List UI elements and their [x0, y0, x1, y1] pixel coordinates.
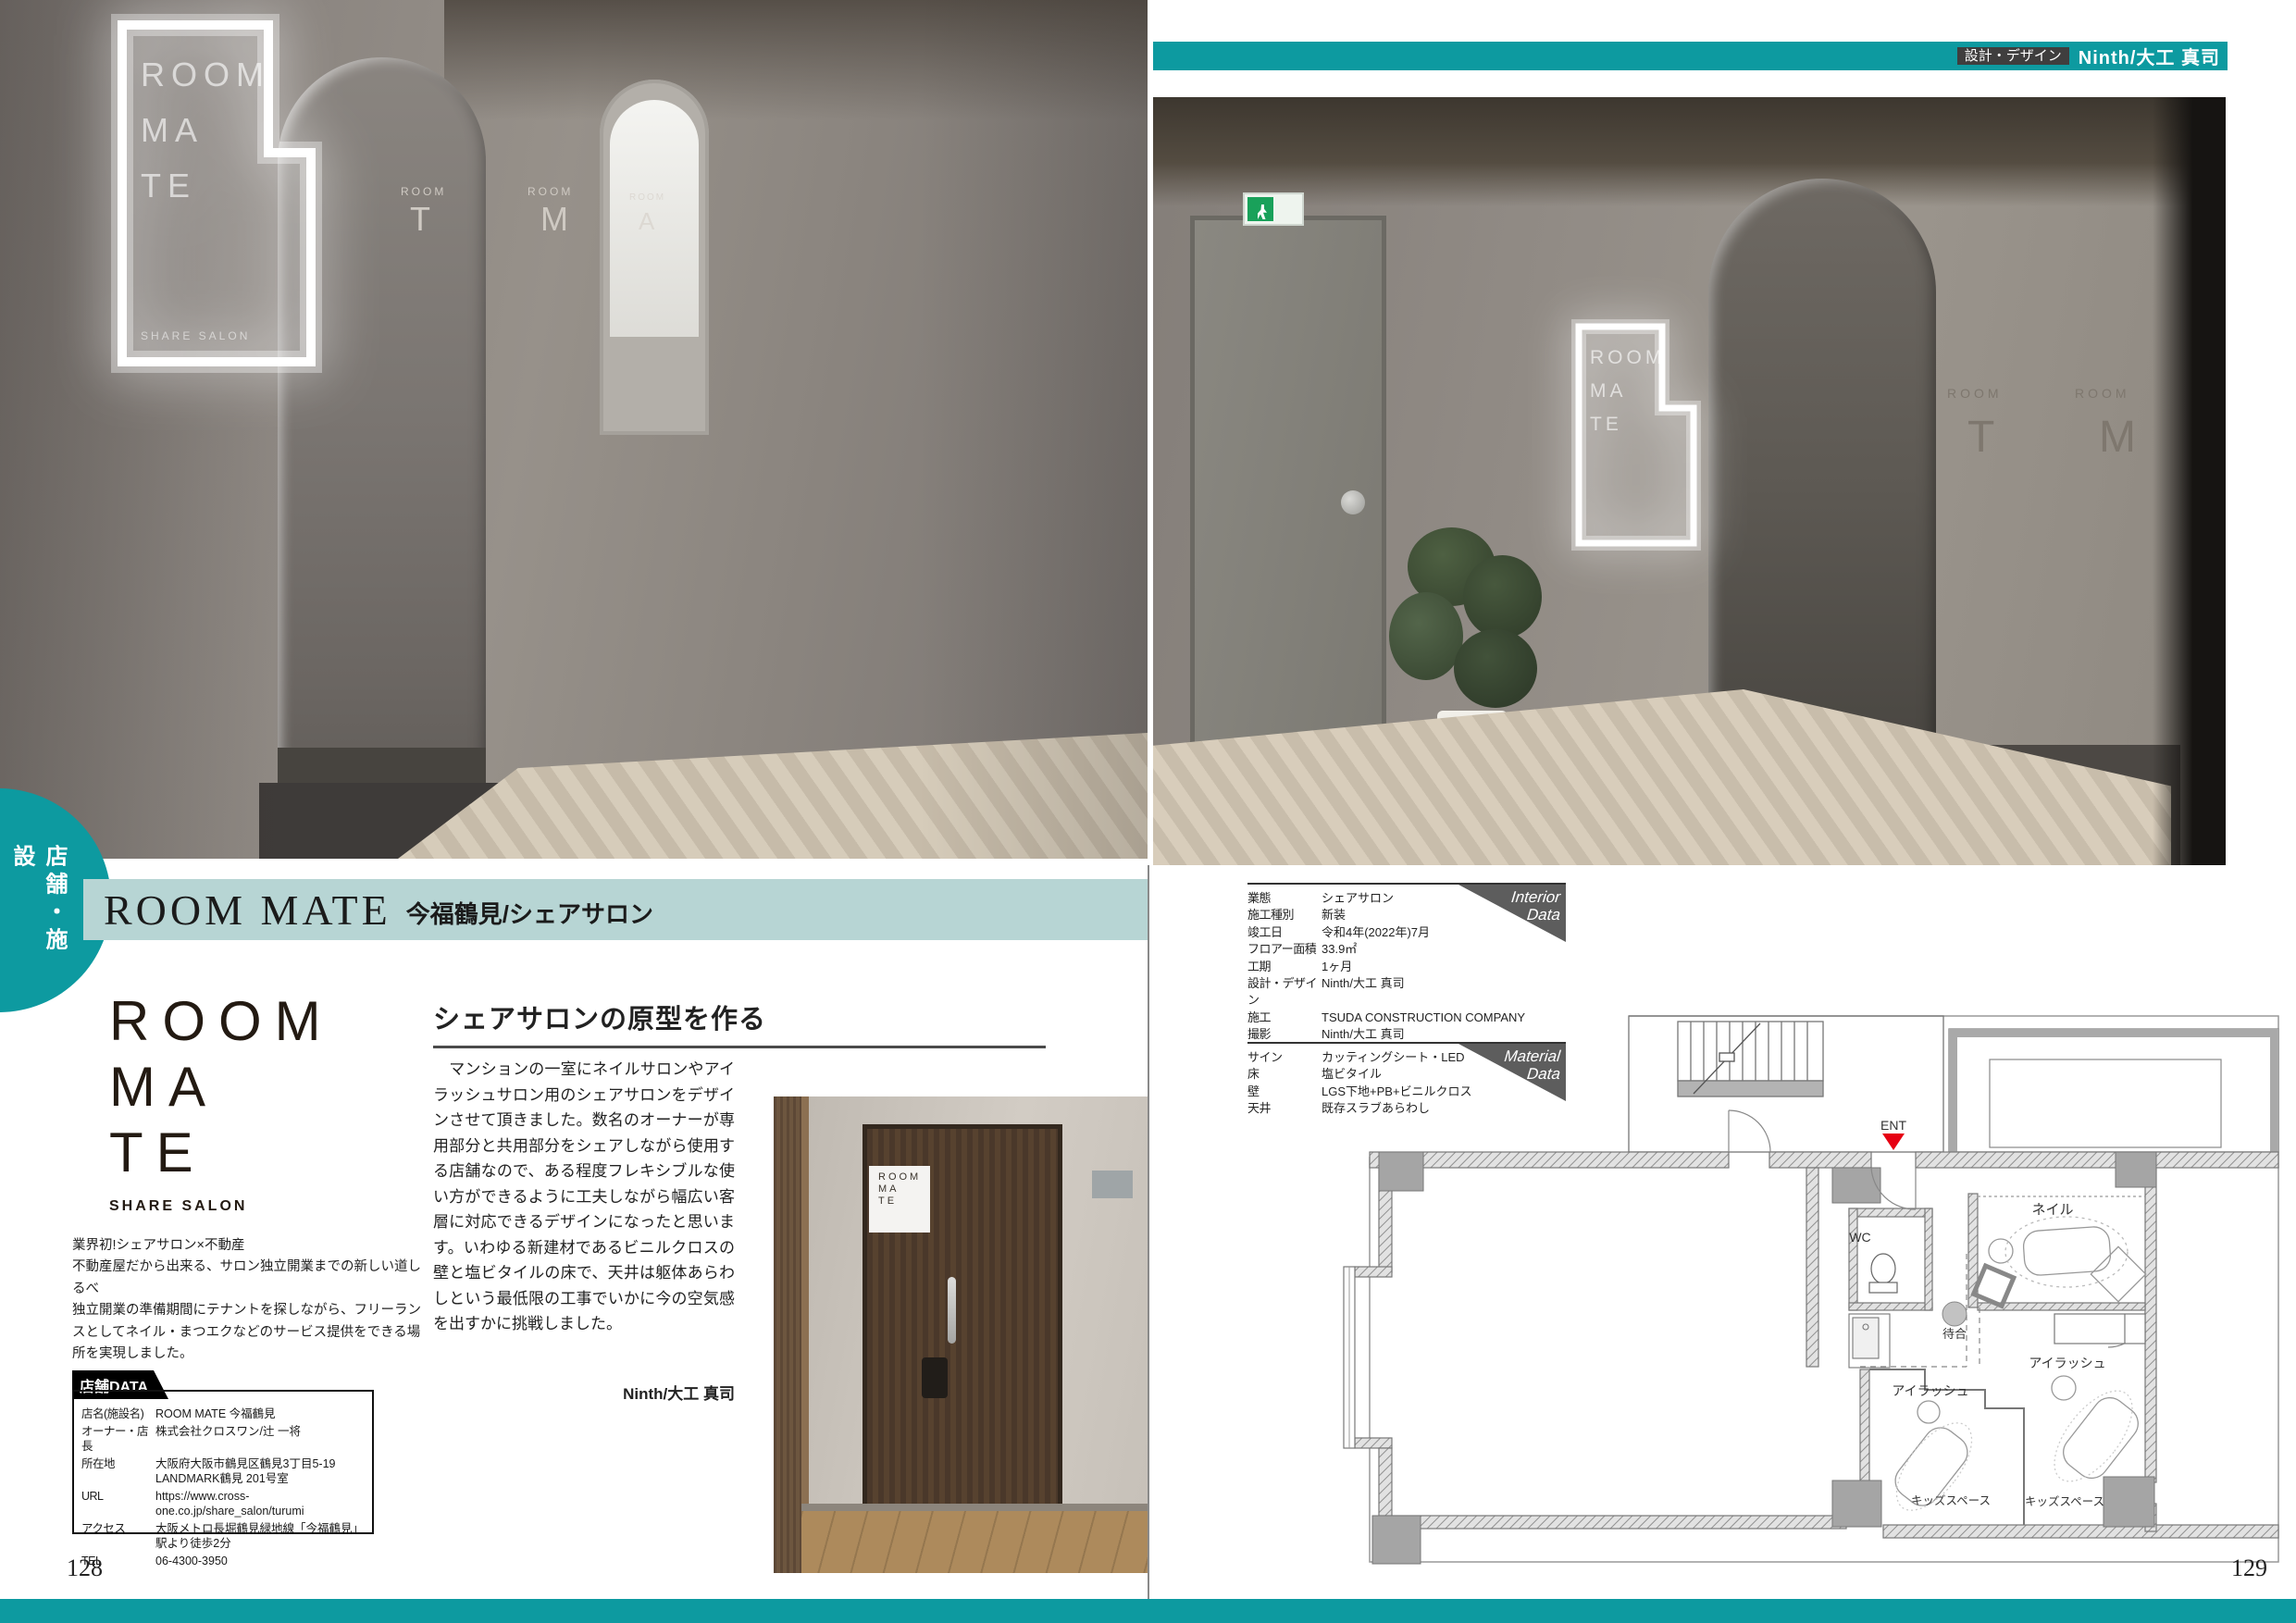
sign-line-2: MA: [141, 111, 204, 149]
page-fold-line: [1148, 865, 1149, 1599]
shop-data-box: 店名(施設名)ROOM MATE 今福鶴見 オーナー・店長株式会社クロスワン/辻…: [72, 1390, 374, 1534]
led-sign: ROOM MA TE SHARE SALON: [111, 14, 324, 375]
logo-line-2: MA: [109, 1054, 387, 1120]
kids-right-label: キッズスペース: [2025, 1494, 2104, 1508]
bottom-teal-strip: [0, 1599, 2296, 1623]
dark-wall-edge: [2153, 97, 2226, 865]
waiting-label: 待合: [1942, 1327, 1967, 1341]
sink-closet: [1849, 1314, 1890, 1368]
wood-floor: [801, 1511, 1148, 1573]
shop-data-row: 所在地大阪府大阪市鶴見区鶴見3丁目5-19 LANDMARK鶴見 201号室: [81, 1456, 365, 1487]
svg-text:TE: TE: [1590, 414, 1622, 435]
upper-right-block: [1949, 1029, 2278, 1152]
credit-name: Ninth/大工 真司: [2079, 43, 2220, 69]
svg-text:ROOM: ROOM: [1590, 347, 1665, 368]
page-number-left: 128: [67, 1555, 103, 1582]
skirting: [801, 1504, 1148, 1511]
logo-line-1: ROOM: [109, 988, 387, 1054]
entrance-door-photo: ROOM MA TE: [774, 1096, 1148, 1573]
kids-left-label: キッズスペース: [1911, 1493, 1991, 1507]
page-number-right: 129: [2203, 1555, 2267, 1582]
shop-data-row: オーナー・店長株式会社クロスワン/辻 一将: [81, 1424, 365, 1455]
eyelash-right-label: アイラッシュ: [2029, 1356, 2105, 1370]
article-body: マンションの一室にネイルサロンやアイラッシュサロン用のシェアサロンをデザインさせ…: [433, 1057, 735, 1337]
concept-intro: 業界初!シェアサロン×不動産 不動産屋だから出来る、サロン独立開業までの新しい道…: [72, 1235, 433, 1366]
shop-data-row: アクセス大阪メトロ長堀鶴見緑地線「今福鶴見」駅より徒歩2分: [81, 1521, 365, 1552]
toilet: [1869, 1254, 1897, 1293]
wall-letter-m: M: [2099, 412, 2136, 463]
svg-text:MA: MA: [1590, 380, 1627, 402]
floor-plan: ENT WC 待合 ネイル アイラッシュ アイラッシュ キッズスペース キッズス…: [1342, 1009, 2286, 1578]
credit-tag: 設計・デザイン: [1957, 47, 2069, 65]
ent-arrow: [1882, 1134, 1905, 1150]
door-knob: [1341, 490, 1365, 514]
shop-data-row: TEL06-4300-3950: [81, 1554, 365, 1569]
article-heading-block: シェアサロンの原型を作る: [433, 997, 1046, 1048]
logo-line-3: TE: [109, 1120, 387, 1185]
top-credit-bar: 設計・デザイン Ninth/大工 真司: [1153, 42, 2228, 70]
sign-line-1: ROOM: [141, 56, 270, 93]
right-interior-photo: ROOM ROOM T M ROOM MA TE: [1153, 97, 2226, 865]
exit-green-panel: [1247, 197, 1273, 221]
intro-line-2: 不動産屋だから出来る、サロン独立開業までの新しい道しるべ: [72, 1257, 433, 1300]
left-interior-photo: ROOM T ROOM M ROOM A ROOM MA TE SHARE SA…: [0, 0, 1148, 859]
wood-frame: [774, 1096, 801, 1573]
door-logo-plate: ROOM MA TE: [869, 1166, 930, 1233]
wood-frame-edge: [801, 1096, 809, 1573]
wc-label: WC: [1849, 1230, 1870, 1245]
wall-letter-room-2: ROOM: [2075, 386, 2130, 401]
eyelash-left-label: アイラッシュ: [1892, 1383, 1968, 1398]
waiting-stool: [1942, 1302, 1967, 1326]
led-sign: ROOM MA TE: [1571, 319, 1701, 551]
wall-sign-plate: [1092, 1171, 1133, 1198]
key-reader: [922, 1357, 948, 1398]
sign-subtitle: SHARE SALON: [141, 329, 250, 342]
nail-chair: [1974, 1217, 2146, 1306]
door-handle: [948, 1277, 956, 1344]
logo-subtitle: SHARE SALON: [109, 1198, 387, 1215]
emergency-exit-sign: [1243, 192, 1304, 226]
wall-letter-t: T: [1967, 412, 1994, 463]
shop-name-jp: 今福鶴見/シェアサロン: [406, 896, 653, 930]
intro-line-1: 業界初!シェアサロン×不動産: [72, 1235, 433, 1257]
sign-line-3: TE: [141, 167, 196, 204]
ent-label: ENT: [1880, 1118, 1906, 1133]
intro-line-3: 独立開業の準備期間にテナントを探しながら、フリーランスとしてネイル・まつエクなど…: [72, 1300, 433, 1365]
running-man-icon: [1258, 204, 1267, 219]
wall-letter-room-1: ROOM: [1947, 386, 2003, 401]
shop-name-en: ROOM MATE: [104, 886, 391, 935]
category-tab-label: 店舗・施設: [6, 845, 70, 957]
title-bar: ROOM MATE 今福鶴見/シェアサロン: [83, 879, 1148, 940]
shop-data-row: 店名(施設名)ROOM MATE 今福鶴見: [81, 1406, 365, 1422]
article-heading: シェアサロンの原型を作る: [433, 997, 1046, 1036]
nail-label: ネイル: [2031, 1202, 2073, 1218]
shop-data-row: URLhttps://www.cross-one.co.jp/share_sal…: [81, 1489, 365, 1519]
article-byline: Ninth/大工 真司: [433, 1381, 735, 1404]
concrete-ceiling: [1153, 97, 2226, 206]
brand-logo: ROOM MA TE SHARE SALON: [109, 988, 387, 1215]
